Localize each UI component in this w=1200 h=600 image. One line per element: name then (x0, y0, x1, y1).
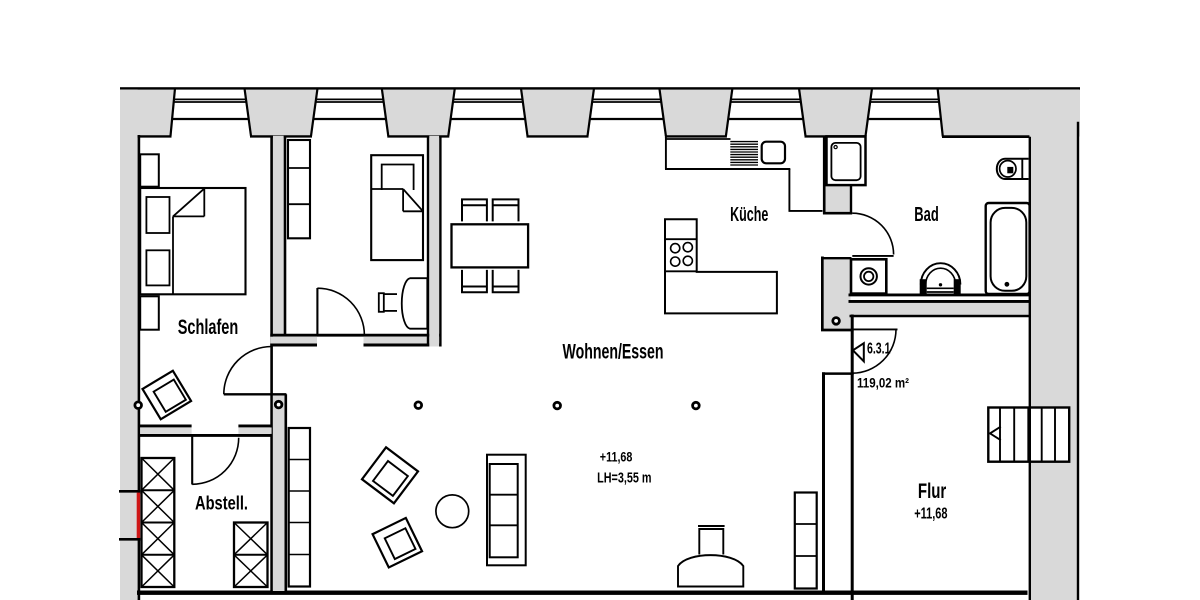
svg-text:Wohnen/Essen: Wohnen/Essen (563, 341, 664, 364)
svg-text:6.3.1: 6.3.1 (867, 340, 891, 357)
svg-text:LH=3,55 m: LH=3,55 m (597, 471, 651, 487)
svg-text:+11,68: +11,68 (600, 448, 633, 464)
svg-text:Küche: Küche (730, 204, 768, 226)
svg-text:+11,68: +11,68 (914, 505, 948, 522)
svg-text:119,02 m²: 119,02 m² (857, 375, 909, 390)
svg-text:Schlafen: Schlafen (178, 316, 239, 339)
svg-text:Abstell.: Abstell. (195, 494, 248, 515)
svg-text:Bad: Bad (914, 204, 939, 226)
svg-text:Flur: Flur (918, 480, 946, 503)
